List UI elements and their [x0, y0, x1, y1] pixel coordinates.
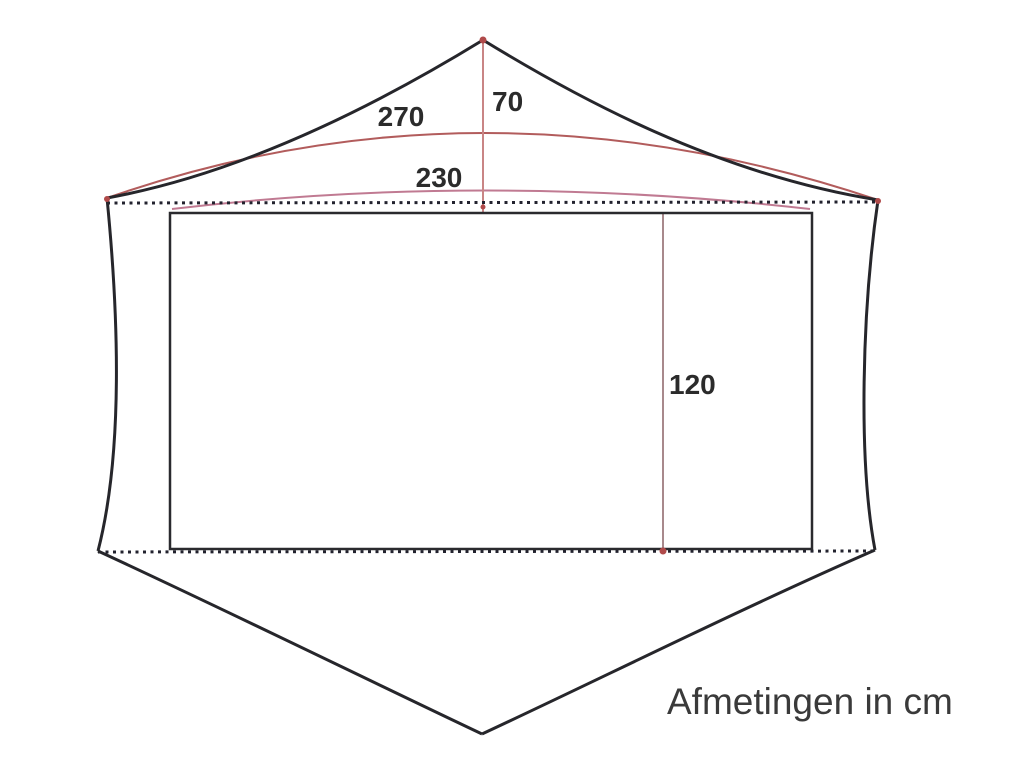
tent-right-side-outline [864, 200, 878, 550]
tent-dimension-diagram: 270 70 230 120 Afmetingen in cm [0, 0, 1024, 768]
bottom-dotted-ground-line [98, 551, 875, 552]
peak-height-label: 70 [492, 86, 523, 117]
diagram-caption: Afmetingen in cm [667, 681, 953, 722]
ridge-length-label: 270 [378, 101, 425, 132]
inner-height-label: 120 [669, 369, 716, 400]
tent-diagram-svg: 270 70 230 120 Afmetingen in cm [0, 0, 1024, 768]
left-tip-endpoint-dot [104, 196, 110, 202]
right-tip-endpoint-dot [875, 198, 881, 204]
inner-height-base-dot [660, 548, 667, 555]
inner-width-label: 230 [416, 162, 463, 193]
tent-roof-right-outline [483, 40, 878, 200]
center-line-base-dot [481, 205, 486, 210]
peak-endpoint-dot [480, 37, 487, 44]
tent-left-side-outline [98, 198, 116, 551]
inner-width-measure-line [172, 191, 810, 210]
tent-bottom-left-outline [98, 551, 482, 734]
